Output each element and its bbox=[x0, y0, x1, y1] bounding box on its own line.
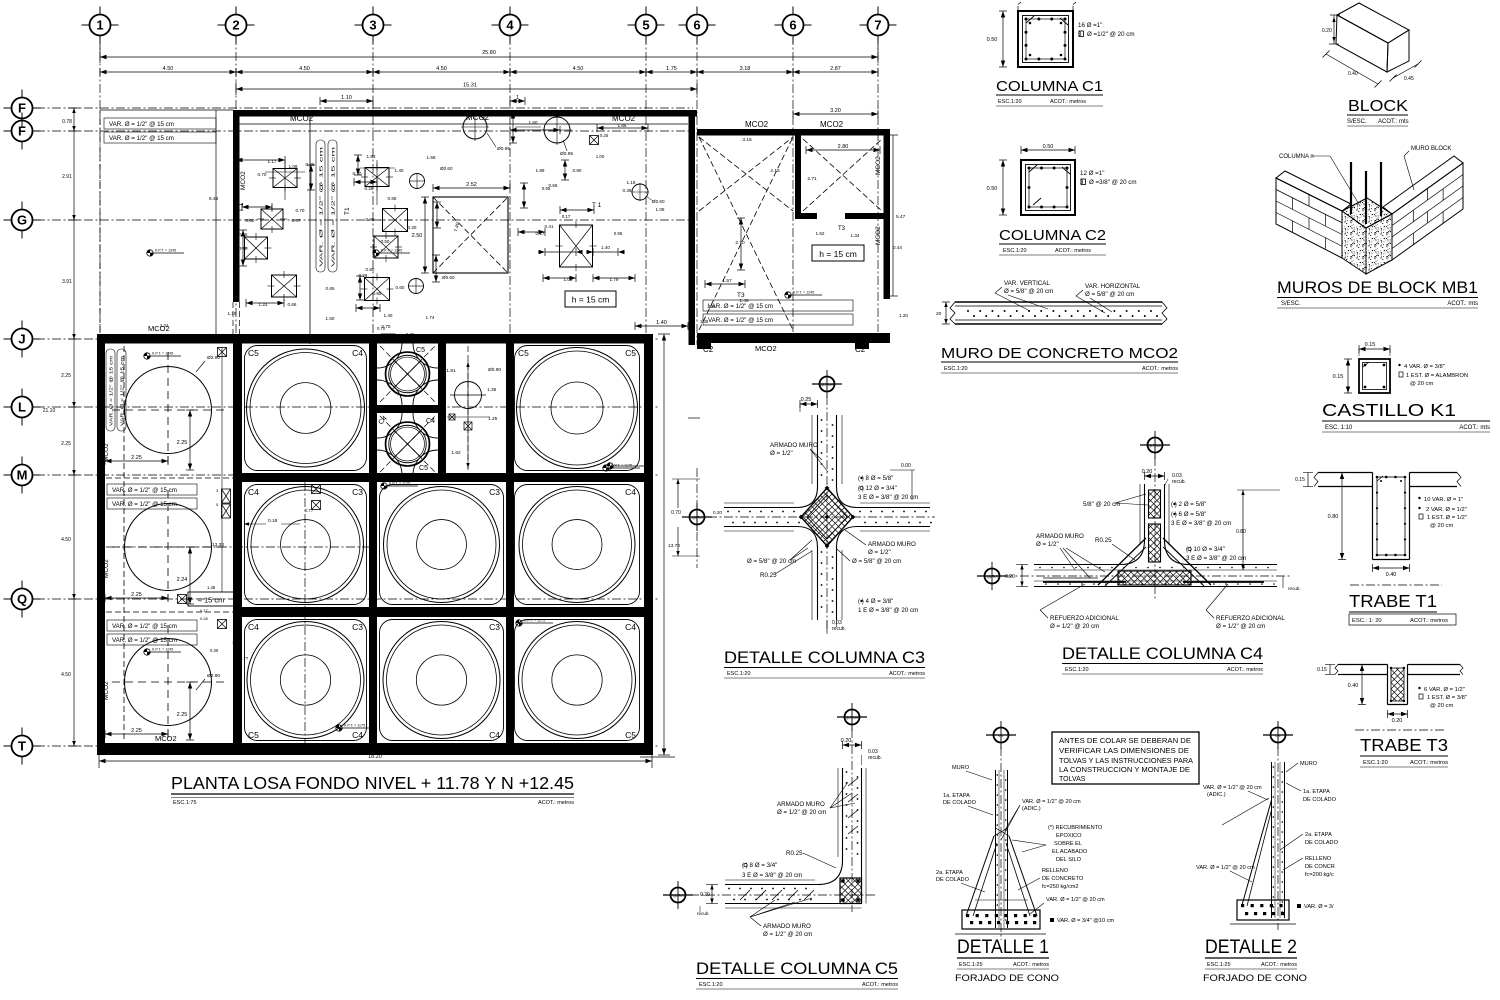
svg-text:Ø0.90: Ø0.90 bbox=[488, 367, 501, 373]
svg-text:(ADIC.): (ADIC.) bbox=[1207, 792, 1226, 798]
svg-text:0.17: 0.17 bbox=[200, 608, 209, 613]
svg-text:1.19: 1.19 bbox=[627, 180, 636, 185]
svg-text:16 Ø =1": 16 Ø =1" bbox=[1078, 22, 1102, 29]
svg-text:C5: C5 bbox=[625, 348, 636, 358]
svg-text:VAR. Ø = 1/2" @ 15 cm: VAR. Ø = 1/2" @ 15 cm bbox=[112, 623, 177, 630]
svg-text:1.60: 1.60 bbox=[529, 120, 538, 125]
svg-text:4 VAR. Ø = 3/8": 4 VAR. Ø = 3/8" bbox=[1404, 364, 1445, 370]
svg-text:0.40: 0.40 bbox=[1348, 71, 1358, 77]
svg-text:4.50: 4.50 bbox=[61, 672, 71, 678]
svg-text:CASTILLO K1: CASTILLO K1 bbox=[1322, 400, 1456, 420]
svg-text:Ø0.60: Ø0.60 bbox=[442, 275, 455, 280]
svg-text:1.08: 1.08 bbox=[656, 207, 665, 212]
svg-text:C4: C4 bbox=[352, 730, 363, 740]
svg-text:MURO: MURO bbox=[952, 765, 970, 771]
svg-text:1.39: 1.39 bbox=[700, 319, 709, 324]
svg-text:1a. ETAPA: 1a. ETAPA bbox=[1303, 789, 1330, 795]
svg-text:3: 3 bbox=[1078, 31, 1082, 38]
svg-text:REFUERZO ADICIONAL: REFUERZO ADICIONAL bbox=[1216, 615, 1285, 622]
svg-text:0.20: 0.20 bbox=[841, 738, 852, 744]
svg-text:25.80: 25.80 bbox=[482, 50, 496, 56]
svg-text:VERIFICAR LAS DIMENSIONES DE: VERIFICAR LAS DIMENSIONES DE bbox=[1059, 748, 1189, 755]
svg-text:ESC. 1:10: ESC. 1:10 bbox=[1325, 425, 1353, 431]
svg-text:0.15: 0.15 bbox=[1333, 374, 1344, 380]
svg-text:2.25: 2.25 bbox=[131, 455, 142, 461]
svg-text:BLOCK: BLOCK bbox=[1348, 98, 1409, 115]
svg-text:ESC.1:20: ESC.1:20 bbox=[699, 982, 723, 988]
svg-text:5.47: 5.47 bbox=[896, 214, 906, 220]
svg-text:C4: C4 bbox=[426, 418, 435, 425]
svg-text:ESC.1:20: ESC.1:20 bbox=[1363, 760, 1388, 766]
svg-text:C4: C4 bbox=[248, 487, 259, 497]
svg-text:0.70: 0.70 bbox=[671, 510, 681, 516]
svg-text:RELLENO: RELLENO bbox=[1042, 868, 1069, 874]
svg-text:Ø = 1/2" @ 20 cm: Ø = 1/2" @ 20 cm bbox=[777, 809, 826, 816]
svg-text:ACOT.: metros: ACOT.: metros bbox=[1261, 962, 1297, 968]
svg-text:Ø = 1/2" @ 20 cm: Ø = 1/2" @ 20 cm bbox=[1050, 623, 1099, 630]
svg-text:ESC.1:75: ESC.1:75 bbox=[173, 800, 197, 806]
svg-text:ARMADO MURO: ARMADO MURO bbox=[777, 801, 825, 808]
svg-text:ESC.1:20: ESC.1:20 bbox=[727, 671, 751, 677]
svg-text:TOLVAS: TOLVAS bbox=[1059, 776, 1086, 783]
svg-text:ESC.: 1: 20: ESC.: 1: 20 bbox=[1352, 618, 1382, 624]
svg-text:C5: C5 bbox=[419, 465, 428, 472]
svg-text:( ) 4 Ø = 3/8": ( ) 4 Ø = 3/8" bbox=[858, 598, 893, 605]
svg-text:( ) 8 Ø = 5/8": ( ) 8 Ø = 5/8" bbox=[858, 475, 893, 482]
svg-text:C5: C5 bbox=[416, 347, 425, 354]
svg-text:1.57: 1.57 bbox=[722, 278, 732, 284]
svg-text:recub.: recub. bbox=[832, 626, 846, 632]
svg-text:1.89: 1.89 bbox=[536, 168, 545, 173]
svg-text:VAR. Ø = 1/2" @ 20 cm: VAR. Ø = 1/2" @ 20 cm bbox=[1046, 897, 1105, 903]
svg-text:2.71: 2.71 bbox=[807, 176, 817, 182]
svg-text:2.15: 2.15 bbox=[770, 168, 780, 174]
svg-text:13.70: 13.70 bbox=[668, 543, 680, 549]
svg-text:Ø2.90: Ø2.90 bbox=[207, 673, 220, 679]
svg-text:Ø = 1/2": Ø = 1/2" bbox=[770, 450, 793, 457]
svg-text:1.40: 1.40 bbox=[601, 245, 610, 250]
svg-text:3 E Ø = 3/8" @ 20 cm: 3 E Ø = 3/8" @ 20 cm bbox=[1186, 555, 1246, 562]
svg-text:0.15: 0.15 bbox=[1365, 342, 1376, 348]
svg-text:C2: C2 bbox=[855, 345, 866, 354]
svg-text:ACOT.: metros: ACOT.: metros bbox=[1055, 248, 1091, 254]
svg-text:T: T bbox=[18, 739, 26, 754]
svg-text:ACOT.: metros: ACOT.: metros bbox=[1227, 667, 1263, 673]
svg-text:DE COLADO: DE COLADO bbox=[1305, 840, 1339, 846]
svg-text:2.25: 2.25 bbox=[177, 440, 188, 446]
svg-text:0.78: 0.78 bbox=[62, 119, 72, 125]
svg-text:20: 20 bbox=[936, 311, 942, 317]
svg-text:18.20: 18.20 bbox=[368, 754, 382, 760]
svg-text:fc=200 kg/c: fc=200 kg/c bbox=[1305, 872, 1334, 878]
svg-text:Ø0.95: Ø0.95 bbox=[497, 146, 510, 152]
svg-text:0.80: 0.80 bbox=[1236, 529, 1246, 535]
svg-text:recub.: recub. bbox=[868, 755, 882, 761]
svg-text:COLUMNA n: COLUMNA n bbox=[1279, 154, 1314, 160]
svg-text:0.00: 0.00 bbox=[901, 463, 911, 469]
svg-text:T3: T3 bbox=[845, 338, 853, 344]
svg-text:3.91: 3.91 bbox=[62, 279, 72, 285]
svg-text:1 EST. Ø = 3/8": 1 EST. Ø = 3/8" bbox=[1427, 695, 1467, 701]
svg-text:C3: C3 bbox=[489, 487, 500, 497]
svg-text:0.20: 0.20 bbox=[1322, 28, 1332, 34]
svg-text:ARMADO MURO: ARMADO MURO bbox=[1036, 533, 1084, 540]
svg-text:10 VAR. Ø = 1": 10 VAR. Ø = 1" bbox=[1424, 497, 1463, 503]
svg-text:3.18: 3.18 bbox=[740, 66, 751, 72]
svg-text:VAR. Ø = 1/2" @ 15 cm: VAR. Ø = 1/2" @ 15 cm bbox=[109, 121, 174, 128]
svg-text:VAR. Ø = 1/2" @ 15 cm: VAR. Ø = 1/2" @ 15 cm bbox=[112, 501, 177, 508]
svg-text:1.19: 1.19 bbox=[228, 311, 237, 316]
svg-text:J: J bbox=[18, 332, 25, 347]
svg-text:@ 20 cm: @ 20 cm bbox=[1430, 523, 1453, 529]
svg-text:= 15 cm: = 15 cm bbox=[198, 596, 225, 605]
svg-text:ARMADO MURO: ARMADO MURO bbox=[770, 442, 818, 449]
svg-text:0.66: 0.66 bbox=[288, 302, 297, 307]
svg-text:FORJADO DE CONO: FORJADO DE CONO bbox=[1203, 973, 1307, 984]
svg-text:C4: C4 bbox=[489, 730, 500, 740]
svg-text:ACOT.: metros: ACOT.: metros bbox=[862, 982, 898, 988]
svg-text:C5: C5 bbox=[625, 730, 636, 740]
svg-text:7: 7 bbox=[874, 18, 881, 33]
svg-text:K.P.T. = 1175: K.P.T. = 1175 bbox=[389, 482, 410, 486]
svg-text:0.85: 0.85 bbox=[388, 196, 397, 201]
svg-text:Ø = 1/2" @ 20 cm: Ø = 1/2" @ 20 cm bbox=[763, 931, 812, 938]
svg-text:F: F bbox=[18, 124, 26, 139]
svg-text:( ) 2 Ø = 5/8": ( ) 2 Ø = 5/8" bbox=[1171, 501, 1206, 508]
svg-text:1.55: 1.55 bbox=[707, 304, 716, 309]
svg-text:1.00: 1.00 bbox=[596, 154, 605, 159]
svg-text:eje/num: eje/num bbox=[844, 715, 860, 720]
svg-text:4.50: 4.50 bbox=[163, 66, 174, 72]
svg-text:Ø = 5/8" @ 20 cm: Ø = 5/8" @ 20 cm bbox=[1004, 288, 1053, 295]
svg-text:4.50: 4.50 bbox=[573, 66, 584, 72]
svg-text:MCO2: MCO2 bbox=[466, 113, 490, 122]
svg-text:K.P.T. = 1175: K.P.T. = 1175 bbox=[524, 619, 545, 623]
svg-text:3: 3 bbox=[1080, 179, 1084, 186]
svg-text:C5: C5 bbox=[248, 730, 259, 740]
svg-text:0.28: 0.28 bbox=[365, 186, 374, 191]
svg-text:2.34: 2.34 bbox=[160, 323, 169, 328]
svg-text:2: 2 bbox=[232, 18, 239, 33]
svg-text:1.62: 1.62 bbox=[816, 231, 825, 236]
svg-text:1.35: 1.35 bbox=[487, 387, 497, 393]
svg-text:Ø = 5/8" @ 20 cm: Ø = 5/8" @ 20 cm bbox=[852, 558, 901, 565]
svg-text:PLANTA LOSA FONDO NIVEL + 11.7: PLANTA LOSA FONDO NIVEL + 11.78 Y N +12.… bbox=[171, 773, 574, 793]
svg-text:VAR. HORIZONTAL: VAR. HORIZONTAL bbox=[1085, 283, 1141, 290]
svg-text:VAR. Ø = 1/2" @ 15 cm: VAR. Ø = 1/2" @ 15 cm bbox=[112, 487, 177, 494]
svg-text:K.P.T. = 1245: K.P.T. = 1245 bbox=[155, 249, 176, 253]
svg-text:0.86: 0.86 bbox=[306, 162, 315, 167]
svg-text:VAR. Ø = 1/2" @ 15 cm: VAR. Ø = 1/2" @ 15 cm bbox=[708, 303, 773, 310]
svg-text:ACOT.: metros: ACOT.: metros bbox=[889, 671, 925, 677]
svg-text:MUROS DE BLOCK MB1: MUROS DE BLOCK MB1 bbox=[1277, 278, 1478, 297]
svg-text:0.60: 0.60 bbox=[396, 285, 405, 290]
svg-text:0.65: 0.65 bbox=[326, 286, 335, 291]
svg-text:1.83: 1.83 bbox=[367, 154, 376, 159]
svg-text:MCO2: MCO2 bbox=[689, 186, 696, 205]
svg-text:1 E Ø = 3/8" @ 20 cm: 1 E Ø = 3/8" @ 20 cm bbox=[858, 607, 918, 614]
svg-text:0.50: 0.50 bbox=[381, 239, 390, 244]
svg-text:M: M bbox=[17, 468, 28, 483]
svg-text:0.30: 0.30 bbox=[210, 648, 219, 653]
svg-text:ACOT.: metros: ACOT.: metros bbox=[1013, 962, 1049, 968]
svg-text:5/8" @ 20 cm: 5/8" @ 20 cm bbox=[1083, 501, 1120, 508]
svg-text:3.15: 3.15 bbox=[742, 137, 752, 143]
svg-text:6: 6 bbox=[789, 18, 796, 33]
svg-text:0.39: 0.39 bbox=[623, 188, 632, 193]
svg-text:5: 5 bbox=[642, 18, 649, 33]
svg-text:2a. ETAPA: 2a. ETAPA bbox=[1305, 832, 1332, 838]
svg-text:0.25: 0.25 bbox=[600, 133, 609, 138]
svg-text:C4: C4 bbox=[248, 622, 259, 632]
svg-text:ACOT.: metros: ACOT.: metros bbox=[1410, 760, 1448, 766]
svg-text:C5: C5 bbox=[518, 348, 529, 358]
svg-text:0.20: 0.20 bbox=[700, 892, 710, 898]
svg-text:h = 15 cm: h = 15 cm bbox=[819, 249, 857, 259]
svg-text:13.30: 13.30 bbox=[212, 542, 224, 548]
svg-text:0.40: 0.40 bbox=[1386, 572, 1397, 578]
svg-text:EPOXICO: EPOXICO bbox=[1056, 833, 1082, 839]
svg-text:Ø = 5/8" @ 20 cm: Ø = 5/8" @ 20 cm bbox=[1085, 291, 1134, 298]
svg-text:( ) 10 Ø = 3/4": ( ) 10 Ø = 3/4" bbox=[1186, 546, 1225, 553]
svg-text:VAR. Ø = 1/2" @ 20 cm: VAR. Ø = 1/2" @ 20 cm bbox=[1203, 785, 1262, 791]
svg-text:ANTES DE COLAR SE DEBERAN DE: ANTES DE COLAR SE DEBERAN DE bbox=[1059, 738, 1191, 745]
svg-text:0.95: 0.95 bbox=[614, 231, 623, 236]
svg-text:DETALLE 2: DETALLE 2 bbox=[1205, 937, 1297, 958]
svg-text:2.24: 2.24 bbox=[177, 577, 188, 583]
svg-text:DE COLADO: DE COLADO bbox=[936, 877, 970, 883]
svg-text:LA CONSTRUCCION Y MONTAJE DE: LA CONSTRUCCION Y MONTAJE DE bbox=[1059, 767, 1190, 774]
svg-text:ESC.1:25: ESC.1:25 bbox=[1207, 962, 1231, 968]
svg-text:0.50: 0.50 bbox=[987, 186, 998, 192]
svg-text:R0.25: R0.25 bbox=[1095, 537, 1112, 544]
svg-text:MCO2: MCO2 bbox=[745, 120, 769, 129]
svg-text:MURO: MURO bbox=[1300, 761, 1318, 767]
svg-text:DE COLADO: DE COLADO bbox=[1303, 797, 1337, 803]
svg-text:(ADIC.): (ADIC.) bbox=[1022, 806, 1041, 812]
svg-text:TRABE T3: TRABE T3 bbox=[1360, 735, 1448, 755]
svg-text:Ø = 5/8" @ 20 cm: Ø = 5/8" @ 20 cm bbox=[747, 558, 796, 565]
svg-text:Ø =1/2" @ 20 cm: Ø =1/2" @ 20 cm bbox=[1087, 31, 1135, 38]
svg-text:K.P.T. = 1245: K.P.T. = 1245 bbox=[152, 352, 173, 356]
svg-text:C3: C3 bbox=[489, 622, 500, 632]
svg-text:T 1: T 1 bbox=[592, 202, 602, 209]
svg-text:eje/let: eje/let bbox=[986, 574, 998, 579]
svg-text:VAR. Ø = 1/2" @ 15 cm: VAR. Ø = 1/2" @ 15 cm bbox=[109, 135, 174, 142]
svg-text:recub.: recub. bbox=[1172, 479, 1186, 485]
svg-text:T1: T1 bbox=[344, 207, 351, 215]
svg-text:12 Ø =1": 12 Ø =1" bbox=[1080, 170, 1104, 177]
svg-text:0.95: 0.95 bbox=[542, 186, 551, 191]
svg-text:T3: T3 bbox=[838, 226, 846, 232]
svg-text:3: 3 bbox=[369, 18, 376, 33]
svg-text:0.15: 0.15 bbox=[1295, 477, 1305, 483]
svg-text:K.P.T. = 1245: K.P.T. = 1245 bbox=[152, 648, 173, 652]
svg-text:0.70: 0.70 bbox=[377, 326, 386, 331]
svg-text:Ø = 1/2" @ 20 cm: Ø = 1/2" @ 20 cm bbox=[1216, 623, 1265, 630]
svg-text:0.60: 0.60 bbox=[246, 218, 255, 223]
svg-text:0.70: 0.70 bbox=[296, 208, 305, 213]
svg-text:1: 1 bbox=[516, 95, 519, 101]
svg-text:MCO2: MCO2 bbox=[875, 156, 882, 175]
svg-text:0.50: 0.50 bbox=[987, 37, 998, 43]
svg-text:0.70: 0.70 bbox=[258, 172, 267, 177]
svg-text:ESC.1:20: ESC.1:20 bbox=[944, 366, 968, 372]
svg-text:1.40: 1.40 bbox=[232, 640, 241, 645]
svg-text:0.20: 0.20 bbox=[1392, 718, 1403, 724]
svg-text:ESC.1:20: ESC.1:20 bbox=[998, 99, 1022, 105]
svg-text:Ø =3/8" @ 20 cm: Ø =3/8" @ 20 cm bbox=[1089, 179, 1137, 186]
svg-text:0.28: 0.28 bbox=[200, 616, 209, 621]
svg-text:C3: C3 bbox=[352, 487, 363, 497]
svg-text:eje/let: eje/let bbox=[672, 893, 684, 898]
svg-text:1 EST. Ø = 1/2": 1 EST. Ø = 1/2" bbox=[1427, 515, 1467, 521]
svg-text:1: 1 bbox=[96, 18, 103, 33]
svg-text:eje/num: eje/num bbox=[1147, 443, 1163, 448]
svg-text:VAR. Ø = 1/2" @ 15 cm: VAR. Ø = 1/2" @ 15 cm bbox=[109, 355, 114, 426]
svg-text:0.25: 0.25 bbox=[801, 397, 812, 403]
svg-text:1.58: 1.58 bbox=[427, 155, 436, 160]
svg-text:2.25: 2.25 bbox=[61, 373, 71, 379]
svg-text:h = 15 cm: h = 15 cm bbox=[572, 295, 610, 305]
svg-text:COLUMNA C1: COLUMNA C1 bbox=[996, 78, 1103, 95]
svg-text:VAR. VERTICAL: VAR. VERTICAL bbox=[1004, 280, 1050, 287]
svg-text:VAR. Ø = 1/2" @ 20 cm: VAR. Ø = 1/2" @ 20 cm bbox=[1196, 865, 1255, 871]
svg-text:VAR. Ø = 3/: VAR. Ø = 3/ bbox=[1304, 904, 1334, 910]
svg-text:2.91: 2.91 bbox=[62, 174, 72, 180]
svg-text:0.80: 0.80 bbox=[366, 217, 375, 222]
svg-text:2a. ETAPA: 2a. ETAPA bbox=[936, 870, 963, 876]
svg-text:Ø = 1/2": Ø = 1/2" bbox=[868, 549, 891, 556]
svg-text:K.P.T. = 1175: K.P.T. = 1175 bbox=[611, 464, 632, 468]
svg-text:DETALLE 1: DETALLE 1 bbox=[957, 937, 1049, 958]
svg-text:DE CONCR: DE CONCR bbox=[1305, 864, 1335, 870]
svg-text:MCO2: MCO2 bbox=[820, 120, 844, 129]
svg-text:1.20: 1.20 bbox=[899, 313, 908, 318]
svg-text:2.25: 2.25 bbox=[131, 728, 142, 734]
svg-text:MCO2: MCO2 bbox=[240, 171, 247, 190]
svg-text:1.50: 1.50 bbox=[326, 316, 335, 321]
svg-text:K.P.T. = 1245: K.P.T. = 1245 bbox=[381, 249, 402, 253]
svg-text:2.25: 2.25 bbox=[61, 441, 71, 447]
svg-text:1a. ETAPA: 1a. ETAPA bbox=[943, 793, 970, 799]
svg-text:3.20: 3.20 bbox=[830, 108, 841, 114]
svg-text:eje: eje bbox=[998, 733, 1004, 738]
svg-text:MCO2: MCO2 bbox=[103, 681, 110, 700]
svg-text:MCO2: MCO2 bbox=[155, 734, 177, 743]
svg-text:COLUMNA C2: COLUMNA C2 bbox=[999, 227, 1106, 244]
svg-text:1.81: 1.81 bbox=[446, 368, 456, 374]
svg-text:0.77: 0.77 bbox=[305, 508, 314, 513]
svg-text:0.41: 0.41 bbox=[545, 224, 554, 229]
svg-text:ESC.1:20: ESC.1:20 bbox=[1065, 667, 1089, 673]
svg-text:SOBRE EL: SOBRE EL bbox=[1054, 841, 1082, 847]
svg-text:15.31: 15.31 bbox=[463, 83, 477, 89]
svg-text:1.40: 1.40 bbox=[384, 313, 393, 318]
svg-text:R0.25: R0.25 bbox=[760, 572, 777, 579]
svg-text:6 VAR. Ø = 1/2": 6 VAR. Ø = 1/2" bbox=[1424, 687, 1465, 693]
svg-text:MCO2: MCO2 bbox=[103, 443, 110, 462]
svg-text:C3: C3 bbox=[352, 622, 363, 632]
svg-text:ACOT.: metros: ACOT.: metros bbox=[538, 800, 574, 806]
svg-text:TOLVAS Y LAS INSTRUCCIONES PAR: TOLVAS Y LAS INSTRUCCIONES PARA bbox=[1059, 758, 1193, 765]
svg-text:C5: C5 bbox=[248, 348, 259, 358]
svg-text:Ø0.60: Ø0.60 bbox=[652, 199, 665, 204]
svg-text:0.80: 0.80 bbox=[366, 267, 375, 272]
svg-text:ARMADO MURO: ARMADO MURO bbox=[763, 923, 811, 930]
svg-text:K.P.T. = 1245: K.P.T. = 1245 bbox=[793, 291, 814, 295]
svg-text:3 E Ø = 3/8" @ 20 cm: 3 E Ø = 3/8" @ 20 cm bbox=[858, 494, 918, 501]
svg-text:L: L bbox=[18, 400, 26, 415]
svg-text:fc=250 kg/cm2: fc=250 kg/cm2 bbox=[1042, 884, 1079, 890]
svg-text:2.70: 2.70 bbox=[735, 240, 745, 246]
svg-text:ACOT.: mts: ACOT.: mts bbox=[1378, 119, 1409, 125]
svg-text:S/ESC.: S/ESC. bbox=[1347, 119, 1367, 125]
svg-text:RELLENO: RELLENO bbox=[1305, 856, 1332, 862]
svg-text:ACOT.: metros: ACOT.: metros bbox=[1050, 99, 1086, 105]
svg-text:MCO2: MCO2 bbox=[612, 114, 636, 123]
svg-text:EL ACABADO: EL ACABADO bbox=[1052, 849, 1088, 855]
svg-text:0.47: 0.47 bbox=[292, 218, 301, 223]
svg-text:MCO2: MCO2 bbox=[103, 559, 110, 578]
svg-text:DE COLADO: DE COLADO bbox=[943, 800, 977, 806]
svg-text:MCO2: MCO2 bbox=[875, 226, 882, 245]
svg-text:ACOT.: mts: ACOT.: mts bbox=[1447, 301, 1478, 307]
svg-text:2 VAR. Ø = 1/2": 2 VAR. Ø = 1/2" bbox=[1426, 507, 1467, 513]
svg-text:0.20: 0.20 bbox=[1005, 574, 1015, 580]
svg-text:3 E Ø = 3/8" @ 20 cm: 3 E Ø = 3/8" @ 20 cm bbox=[1171, 520, 1231, 527]
svg-text:4.50: 4.50 bbox=[299, 66, 310, 72]
svg-text:VAR. Ø = 1/2" @ 15 cm: VAR. Ø = 1/2" @ 15 cm bbox=[331, 146, 336, 267]
svg-text:1.09: 1.09 bbox=[289, 164, 298, 169]
svg-text:3 E Ø = 3/8" @ 20 cm: 3 E Ø = 3/8" @ 20 cm bbox=[742, 872, 802, 879]
svg-text:0.85: 0.85 bbox=[373, 291, 382, 296]
svg-text:0.20: 0.20 bbox=[1142, 469, 1153, 475]
svg-text:MCO2: MCO2 bbox=[755, 344, 777, 353]
svg-text:ACOT.: mts: ACOT.: mts bbox=[1459, 425, 1490, 431]
svg-text:DEL SILO: DEL SILO bbox=[1056, 857, 1082, 863]
svg-text:6.46: 6.46 bbox=[209, 196, 219, 202]
svg-text:@ 20 cm: @ 20 cm bbox=[1430, 703, 1453, 709]
svg-text:@ 20 cm: @ 20 cm bbox=[1410, 381, 1433, 387]
svg-text:G: G bbox=[17, 213, 27, 228]
svg-text:REFUERZO ADICIONAL: REFUERZO ADICIONAL bbox=[1050, 615, 1119, 622]
svg-text:0.44: 0.44 bbox=[893, 245, 902, 250]
svg-text:( ) 12 Ø = 3/4": ( ) 12 Ø = 3/4" bbox=[858, 485, 897, 492]
svg-text:TRABE T1: TRABE T1 bbox=[1349, 591, 1437, 611]
svg-text:eje: eje bbox=[1275, 733, 1281, 738]
svg-text:eje/num: eje/num bbox=[819, 382, 835, 387]
svg-text:0.30: 0.30 bbox=[305, 478, 314, 483]
svg-text:ACOT.: metros: ACOT.: metros bbox=[1142, 366, 1178, 372]
svg-text:1.40: 1.40 bbox=[395, 168, 404, 173]
svg-text:0.80: 0.80 bbox=[1328, 514, 1339, 520]
svg-text:S/ESC.: S/ESC. bbox=[1281, 301, 1301, 307]
svg-text:1.62: 1.62 bbox=[451, 450, 461, 456]
svg-text:2.25: 2.25 bbox=[177, 712, 188, 718]
svg-text:1.74: 1.74 bbox=[426, 315, 435, 320]
svg-text:0.15: 0.15 bbox=[1317, 667, 1327, 673]
svg-text:C2: C2 bbox=[703, 345, 714, 354]
svg-text:Ø0.95: Ø0.95 bbox=[560, 151, 573, 157]
svg-text:ARMADO MURO: ARMADO MURO bbox=[868, 541, 916, 548]
svg-text:MURO BLOCK: MURO BLOCK bbox=[1411, 146, 1451, 152]
svg-text:VAR. Ø = 1/2" @ 20 cm: VAR. Ø = 1/2" @ 20 cm bbox=[1022, 799, 1081, 805]
svg-text:21.10: 21.10 bbox=[43, 408, 56, 414]
svg-text:2.80: 2.80 bbox=[838, 144, 849, 150]
svg-text:0.40: 0.40 bbox=[1348, 683, 1359, 689]
svg-text:recub.: recub. bbox=[1288, 586, 1301, 591]
